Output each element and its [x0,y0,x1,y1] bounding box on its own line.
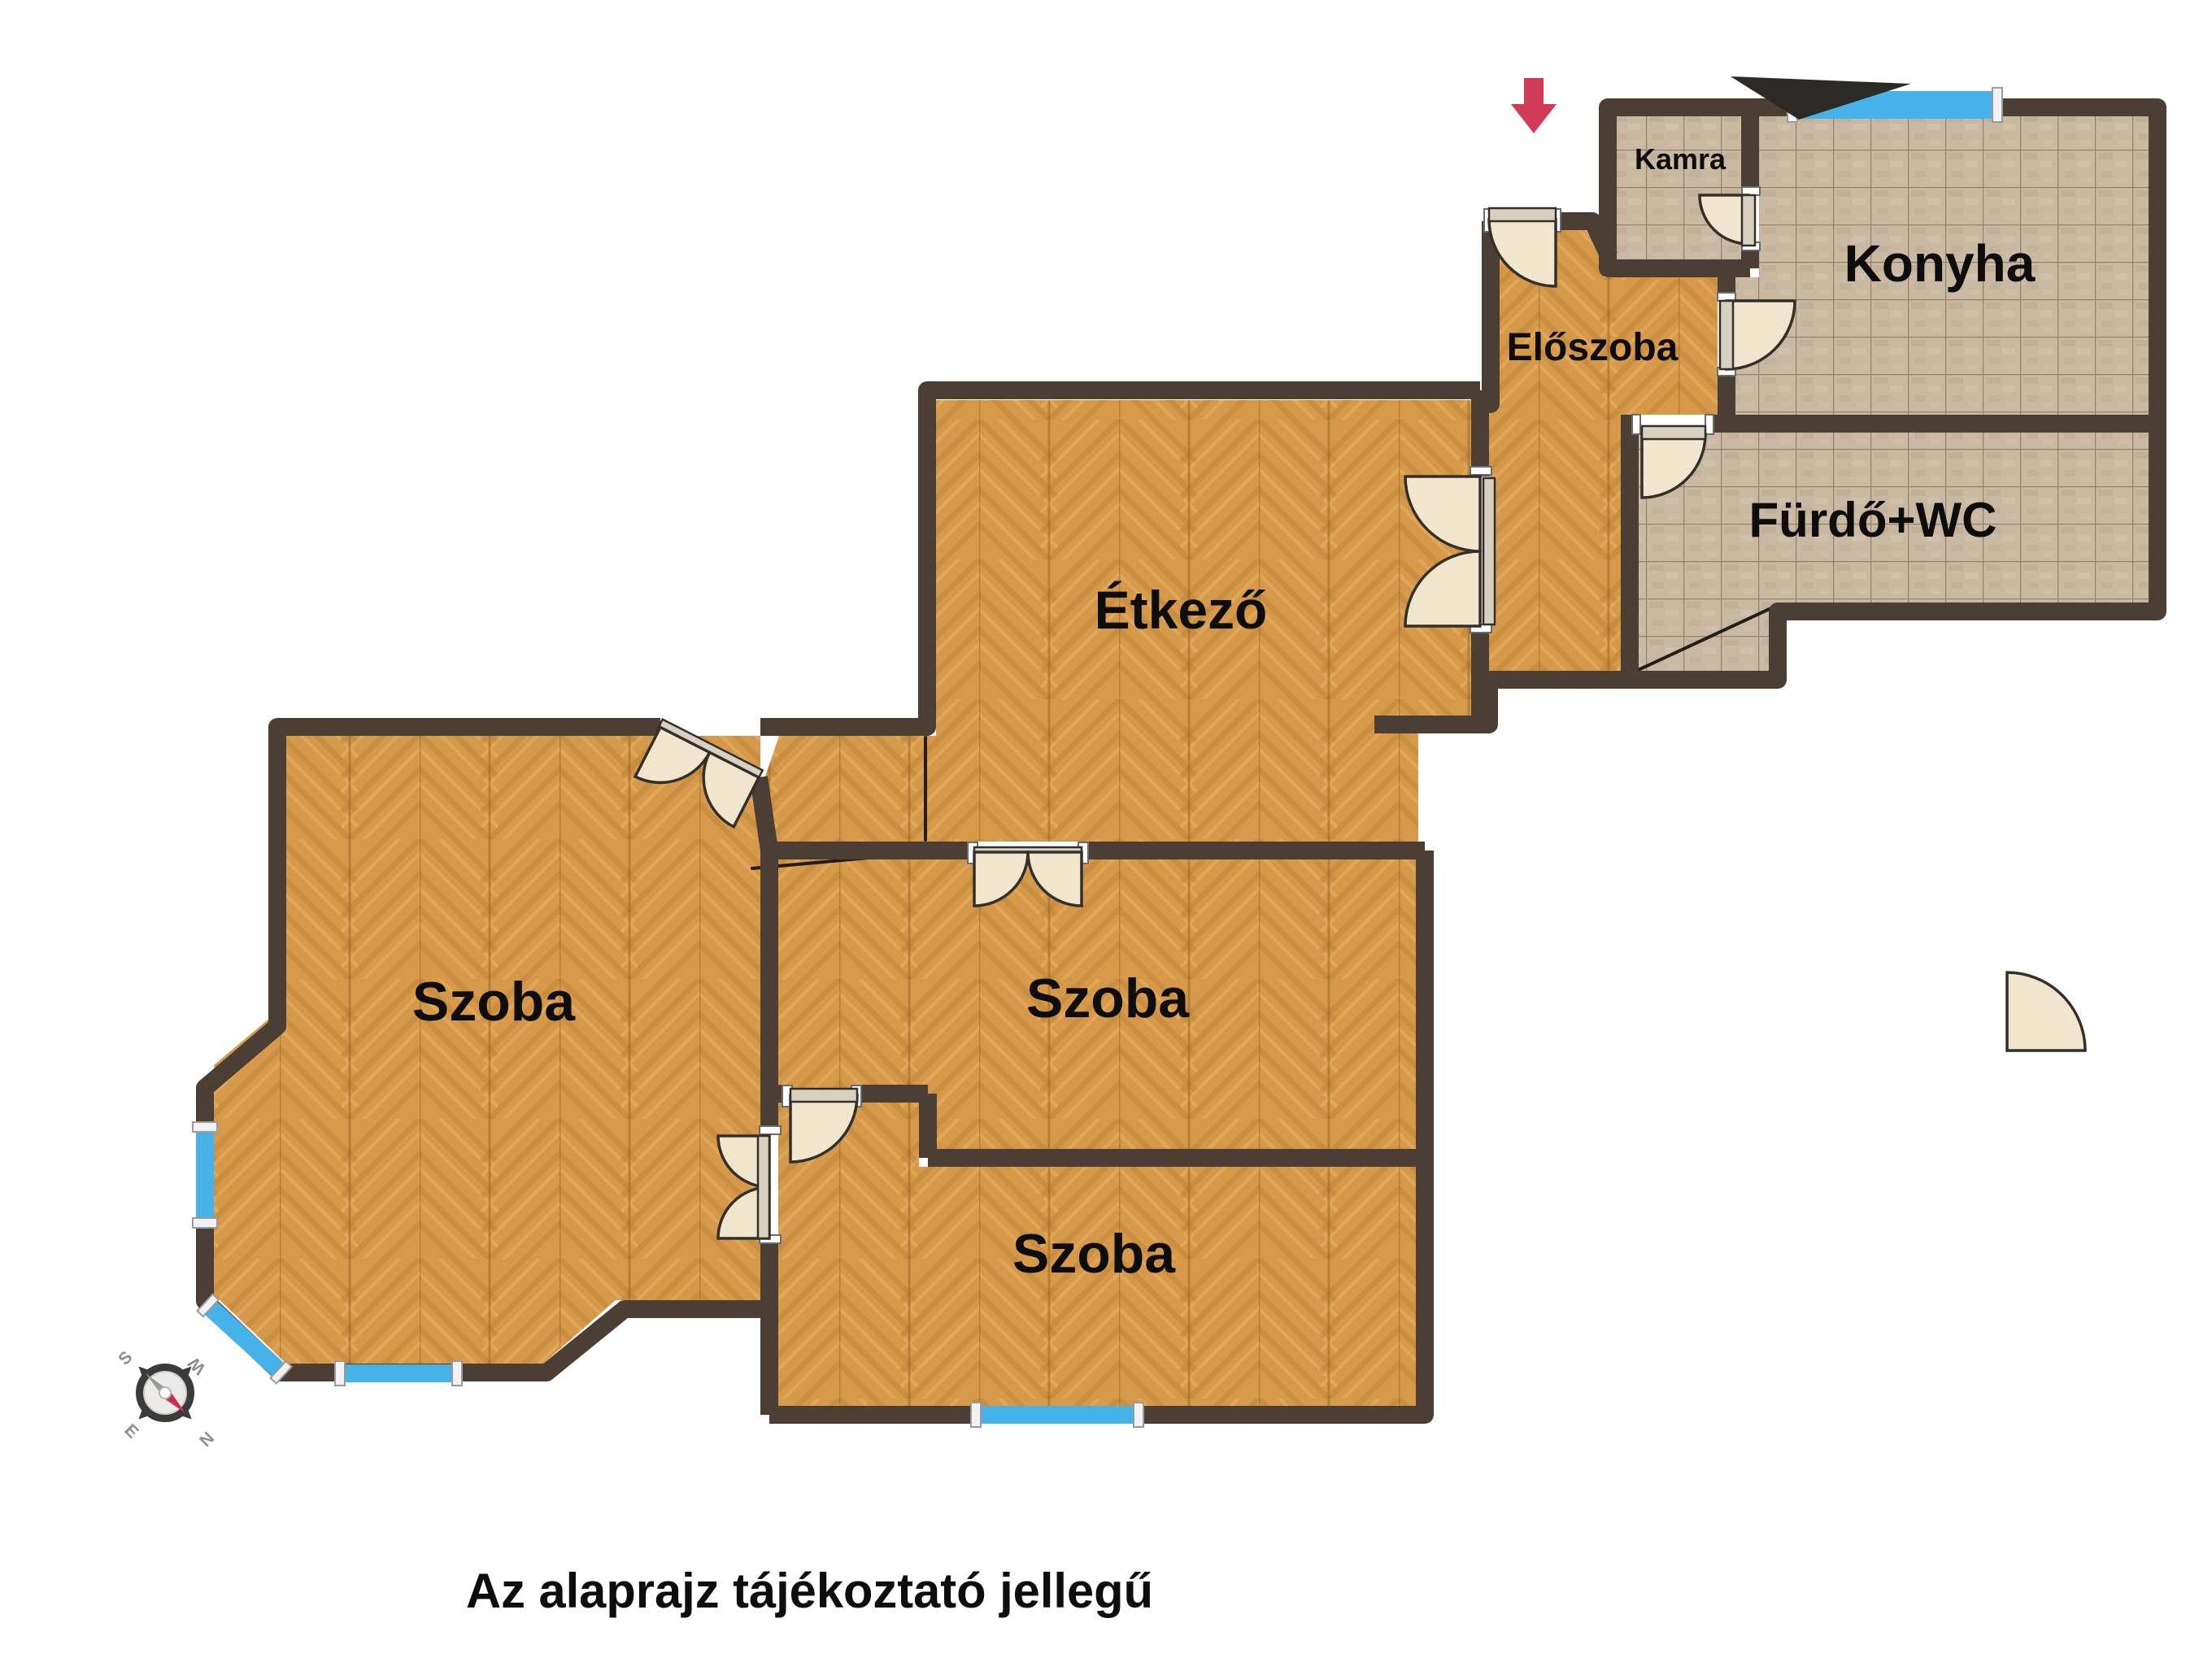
compass-letter-n: N [195,1428,217,1450]
compass-letter-e: E [121,1420,142,1442]
label-szoba-left: Szoba [412,971,576,1033]
label-szoba-bottom: Szoba [1012,1223,1176,1285]
door-symbol-detached [2007,972,2085,1051]
window-szoba-left-side [193,1122,217,1228]
label-furdo: Fürdő+WC [1749,493,1997,547]
entrance-arrow-icon [1511,78,1557,133]
compass-icon: S W N E [115,1347,217,1450]
room-szoba-left-floor [214,736,760,1364]
plan-disclaimer-text: Az alaprajz tájékoztató jellegű [466,1564,1153,1618]
label-szoba-middle: Szoba [1026,968,1190,1029]
compass-letter-s: S [115,1347,136,1368]
window-szoba-bottom [971,1403,1143,1427]
label-eloszoba: Előszoba [1507,326,1679,369]
label-kamra: Kamra [1635,142,1726,176]
label-konyha: Konyha [1844,234,2036,293]
floorplan-page: Kamra Konyha Előszoba Fürdő+WC Étkező Sz… [0,0,2212,1675]
label-etkezo: Étkező [1095,580,1268,640]
window-szoba-left-bottom [335,1361,462,1386]
floorplan-canvas: Kamra Konyha Előszoba Fürdő+WC Étkező Sz… [0,0,2212,1675]
floors [214,116,2149,1406]
